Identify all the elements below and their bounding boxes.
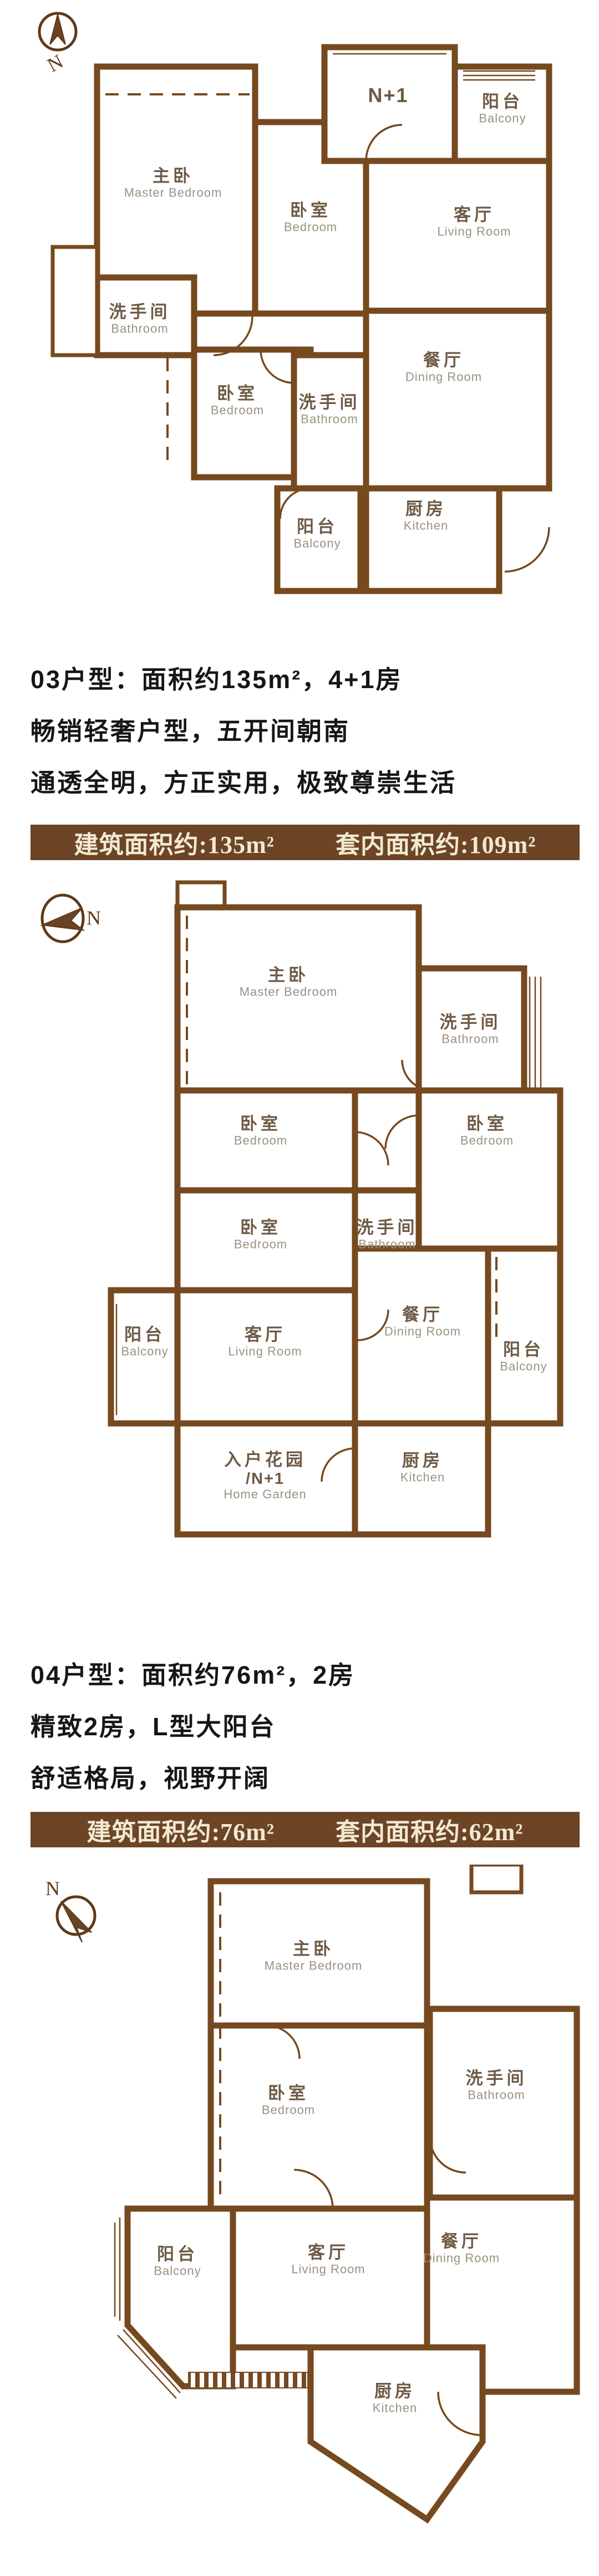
unit-04-heading: 04户型：面积约76m²，2房 — [31, 1649, 574, 1701]
svg-text:N: N — [45, 1877, 60, 1900]
flyer-page: N 主卧Master Bedroom 卧室Bedroom N+1 阳台Balco… — [0, 0, 599, 2576]
room-label: 卧室Bedroom — [284, 201, 337, 234]
room-label: N+1 — [368, 84, 408, 107]
floor-plan-middle: N 主卧Master Bedroom 洗手间Bathroom 卧室Bedroom… — [0, 866, 599, 1576]
room-label: 入户花园/N+1Home Garden — [224, 1451, 306, 1502]
unit-04-line3: 舒适格局，视野开阔 — [31, 1752, 574, 1804]
room-label: 厨房Kitchen — [373, 2382, 417, 2415]
svg-text:N: N — [87, 907, 101, 929]
room-label: 卧室Bedroom — [234, 1114, 287, 1147]
room-label: 卧室Bedroom — [211, 384, 264, 417]
floor-plan-top: N 主卧Master Bedroom 卧室Bedroom N+1 阳台Balco… — [0, 0, 599, 622]
room-label: 阳台Balcony — [479, 92, 526, 125]
compass-icon: N — [39, 13, 76, 77]
room-label: 阳台Balcony — [500, 1340, 547, 1373]
room-label: 洗手间Bathroom — [109, 302, 171, 335]
room-label: 餐厅Dining Room — [423, 2232, 500, 2265]
unit-04-area-banner: 建筑面积约:76m² 套内面积约:62m² — [31, 1812, 580, 1847]
unit-03-description: 03户型：面积约135m²，4+1房 畅销轻奢户型，五开间朝南 通透全明，方正实… — [31, 654, 574, 809]
room-label: 厨房Kitchen — [404, 499, 448, 532]
room-label: 洗手间Bathroom — [299, 393, 361, 426]
room-label: 主卧Master Bedroom — [265, 1939, 363, 1972]
built-area-value: 建筑面积约:135m² — [74, 825, 275, 860]
room-label: 餐厅Dining Room — [405, 351, 482, 383]
room-label: 洗手间Bathroom — [357, 1218, 418, 1251]
compass-icon: N — [42, 895, 101, 942]
unit-03-line3: 通透全明，方正实用，极致尊崇生活 — [31, 757, 574, 809]
svg-text:N: N — [44, 50, 67, 77]
room-label: 卧室Bedroom — [460, 1114, 514, 1147]
inner-area-value: 套内面积约:62m² — [336, 1812, 524, 1847]
room-label: 主卧Master Bedroom — [124, 166, 222, 199]
room-label: 厨房Kitchen — [400, 1451, 445, 1484]
compass-icon: N — [45, 1877, 95, 1942]
room-label: 餐厅Dining Room — [384, 1305, 461, 1338]
room-label: 洗手间Bathroom — [440, 1013, 501, 1045]
room-label: 阳台Balcony — [121, 1325, 168, 1358]
room-label: 主卧Master Bedroom — [240, 966, 338, 998]
room-label: 卧室Bedroom — [262, 2084, 315, 2117]
room-label: 卧室Bedroom — [234, 1218, 287, 1251]
room-label: 客厅Living Room — [437, 205, 511, 238]
unit-03-area-banner: 建筑面积约:135m² 套内面积约:109m² — [31, 825, 580, 860]
room-label: 客厅Living Room — [291, 2243, 365, 2276]
unit-03-line2: 畅销轻奢户型，五开间朝南 — [31, 705, 574, 757]
room-label: 洗手间Bathroom — [466, 2069, 527, 2102]
unit-04-description: 04户型：面积约76m²，2房 精致2房，L型大阳台 舒适格局，视野开阔 — [31, 1649, 574, 1804]
room-label: 客厅Living Room — [228, 1325, 302, 1358]
inner-area-value: 套内面积约:109m² — [336, 825, 536, 860]
built-area-value: 建筑面积约:76m² — [87, 1812, 275, 1847]
unit-03-heading: 03户型：面积约135m²，4+1房 — [31, 654, 574, 705]
floor-plan-bottom: N 主卧Master Bedroom 卧室Bedroom 洗手间Bathroom… — [0, 1865, 599, 2576]
unit-04-line2: 精致2房，L型大阳台 — [31, 1701, 574, 1752]
room-label: 阳台Balcony — [293, 517, 341, 550]
room-label: 阳台Balcony — [154, 2245, 201, 2277]
